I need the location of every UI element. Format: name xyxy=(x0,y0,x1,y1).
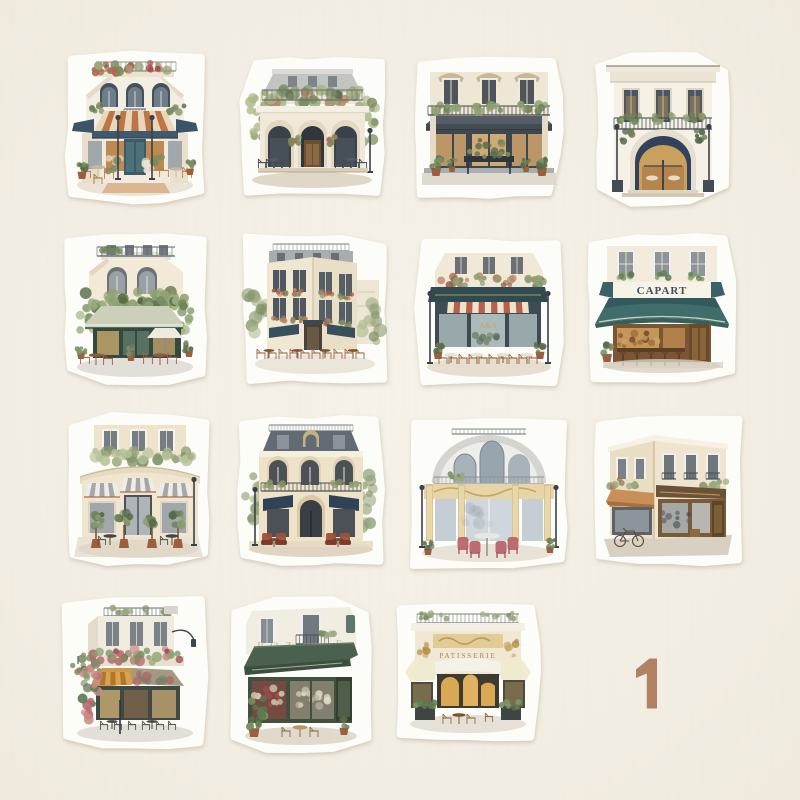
svg-text:CAPART: CAPART xyxy=(637,285,688,297)
svg-text:A&A: A&A xyxy=(479,321,497,330)
